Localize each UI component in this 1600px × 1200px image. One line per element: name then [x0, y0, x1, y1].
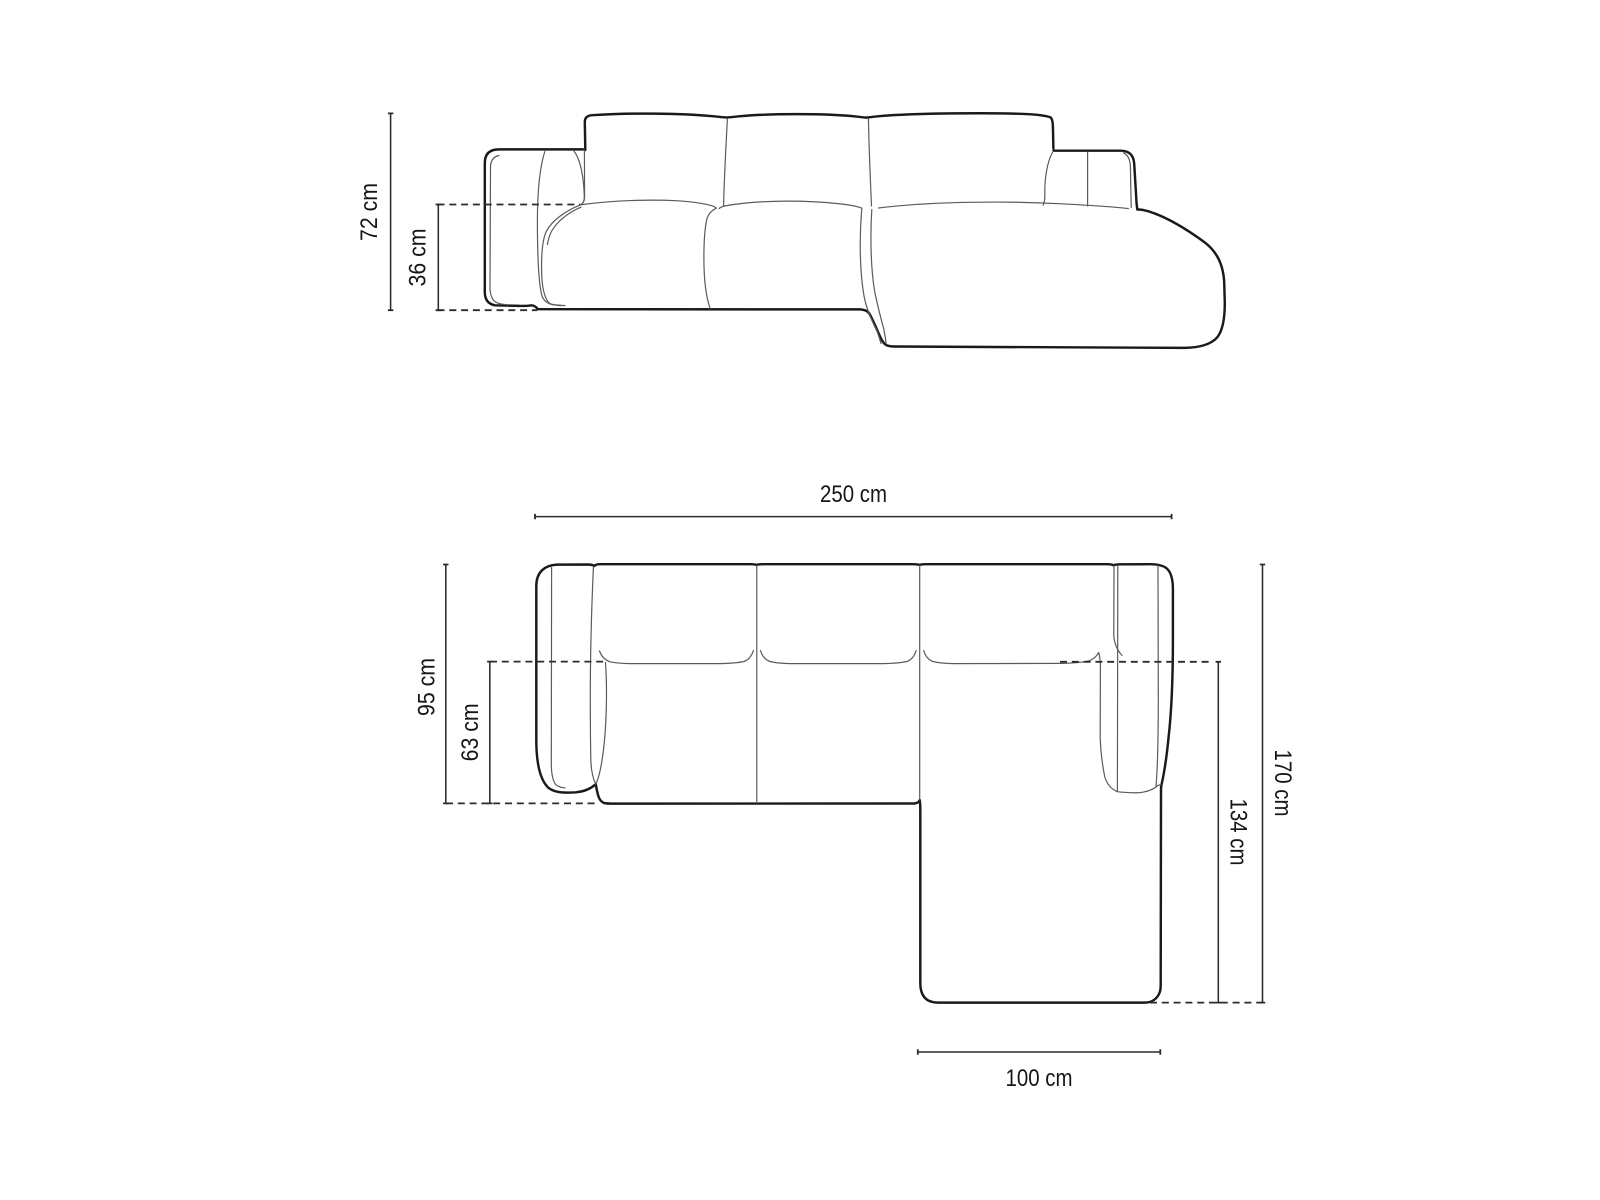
svg-text:36 cm: 36 cm [405, 229, 432, 287]
svg-text:63 cm: 63 cm [457, 703, 484, 761]
svg-text:250 cm: 250 cm [820, 481, 887, 508]
svg-text:100 cm: 100 cm [1006, 1065, 1073, 1092]
svg-text:170 cm: 170 cm [1269, 750, 1296, 817]
svg-text:72 cm: 72 cm [356, 183, 383, 241]
svg-text:134 cm: 134 cm [1224, 799, 1251, 866]
svg-text:95 cm: 95 cm [414, 658, 441, 716]
